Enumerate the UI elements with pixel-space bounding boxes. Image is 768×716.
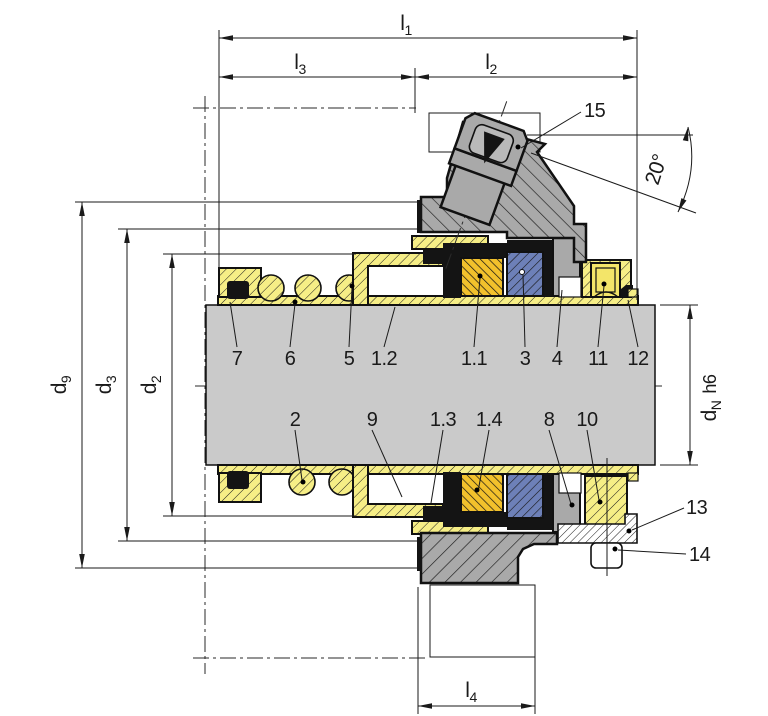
- leader-dot-2: [301, 480, 306, 485]
- seal-drawing-canvas: 20° l1 l3 l2 l4 d9 d3 d2 dNh6: [0, 0, 768, 716]
- leader-dot-6: [293, 300, 298, 305]
- spring-coil-top-2: [295, 275, 321, 301]
- set-screw-7: [227, 281, 249, 299]
- arrow-l3-right: [401, 74, 415, 80]
- dim-label-d2: d2: [138, 375, 164, 394]
- part-label-13: 13: [686, 497, 708, 519]
- flange-gasket-bottom: [417, 537, 422, 571]
- flange-gasket-top: [417, 200, 422, 233]
- arrow-d9-top: [79, 202, 85, 216]
- arrow-l2-left: [415, 74, 429, 80]
- shaft: [206, 305, 655, 465]
- leader-dot-10: [598, 500, 603, 505]
- technical-drawing: 20° l1 l3 l2 l4 d9 d3 d2 dNh6: [0, 0, 768, 716]
- part-label-2: 2: [290, 409, 301, 431]
- gland-ring-4-notch: [559, 277, 581, 297]
- clamp-collar-10: [585, 476, 627, 531]
- part-label-7: 7: [232, 348, 243, 370]
- seal-face-1-4: [461, 474, 503, 512]
- leader-dot-3: [520, 270, 525, 275]
- arrow-d3-bottom: [124, 527, 130, 541]
- gland-flange-bottom: [421, 533, 557, 583]
- arrow-d2-top: [169, 254, 175, 268]
- arrow-dn-bottom: [687, 451, 693, 465]
- part-label-1-4: 1.4: [476, 409, 503, 431]
- part-label-4: 4: [552, 348, 563, 370]
- arrow-l3-left: [219, 74, 233, 80]
- part-label-9: 9: [367, 409, 378, 431]
- arrow-d3-top: [124, 229, 130, 243]
- leader-14: [618, 550, 686, 554]
- dim-label-l2: l2: [485, 51, 497, 77]
- leader-dot-1-4: [475, 488, 480, 493]
- leader-dot-15: [516, 145, 521, 150]
- leader-dot-13: [627, 529, 632, 534]
- stationary-seat-3: [507, 252, 543, 296]
- part-label-5: 5: [344, 348, 355, 370]
- arrow-l4-left: [418, 703, 432, 709]
- spring-coil-top-1: [258, 275, 284, 301]
- part-label-11: 11: [588, 348, 608, 370]
- housing-bore-outline-bottom: [430, 585, 535, 657]
- part-label-12: 12: [627, 348, 649, 370]
- leader-dot-11: [602, 282, 607, 287]
- dim-label-d3: d3: [93, 375, 119, 394]
- arrow-d2-bottom: [169, 502, 175, 516]
- stationary-seat-bottom: [507, 474, 543, 518]
- leader-dot-1-1: [478, 274, 483, 279]
- part-label-6: 6: [285, 348, 296, 370]
- arrow-l2-right: [623, 74, 637, 80]
- part-label-1-3: 1.3: [430, 409, 457, 431]
- dim-label-l4: l4: [465, 679, 477, 705]
- leader-15: [521, 112, 581, 148]
- angle-label: 20°: [641, 152, 672, 188]
- part-label-15: 15: [584, 100, 606, 122]
- dim-label-l1: l1: [400, 12, 412, 38]
- dim-label-dn: dNh6: [698, 374, 724, 421]
- dim-label-d9: d9: [48, 375, 74, 394]
- arrow-l1-right: [623, 35, 637, 41]
- dim-label-l3: l3: [294, 51, 306, 77]
- part-label-14: 14: [689, 544, 711, 566]
- leader-dot-5: [350, 284, 355, 289]
- spring-coil-bottom-2: [329, 469, 355, 495]
- part-label-3: 3: [520, 348, 531, 370]
- sleeve-tab-bottom: [628, 473, 638, 481]
- arrow-dn-top: [687, 305, 693, 319]
- part-label-8: 8: [544, 409, 555, 431]
- part-label-10: 10: [576, 409, 598, 431]
- leader-dot-14: [613, 547, 618, 552]
- part-label-1-1: 1.1: [461, 348, 488, 370]
- leader-dot-8: [570, 503, 575, 508]
- arrow-d9-bottom: [79, 554, 85, 568]
- arrow-l4-right: [521, 703, 535, 709]
- part-label-1-2: 1.2: [371, 348, 398, 370]
- leader-13: [632, 508, 684, 530]
- set-screw-2-collar: [227, 471, 249, 489]
- arrow-l1-left: [219, 35, 233, 41]
